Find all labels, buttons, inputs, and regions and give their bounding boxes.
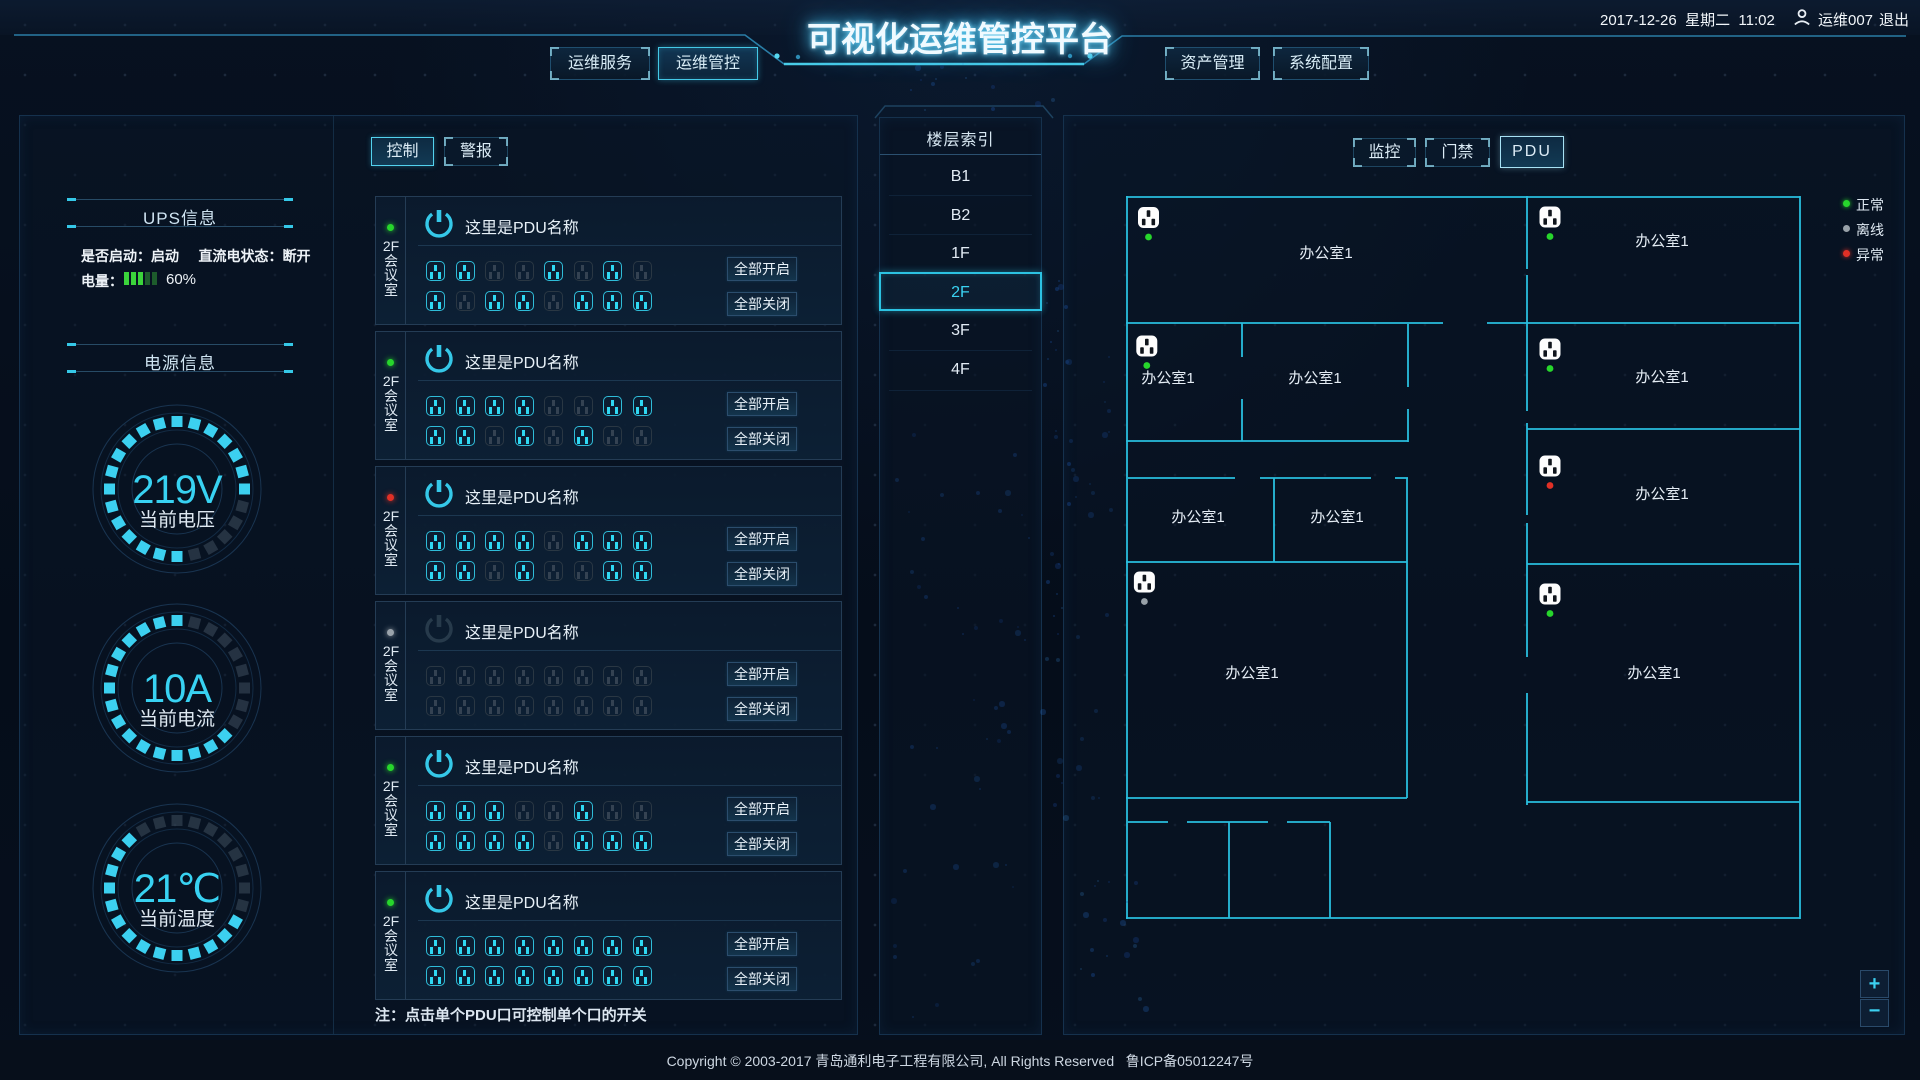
- svg-text:办公室1: 办公室1: [1299, 245, 1352, 262]
- svg-text:办公室1: 办公室1: [1635, 369, 1688, 386]
- svg-text:办公室1: 办公室1: [1635, 486, 1688, 503]
- svg-text:219V: 219V: [132, 468, 223, 512]
- svg-text:当前电压: 当前电压: [139, 509, 215, 531]
- svg-text:办公室1: 办公室1: [1225, 665, 1278, 682]
- svg-text:10A: 10A: [143, 667, 212, 711]
- svg-text:当前温度: 当前温度: [139, 908, 215, 930]
- svg-text:办公室1: 办公室1: [1141, 370, 1194, 387]
- svg-text:当前电流: 当前电流: [139, 708, 215, 730]
- svg-text:办公室1: 办公室1: [1627, 665, 1680, 682]
- svg-text:办公室1: 办公室1: [1310, 509, 1363, 526]
- svg-text:21℃: 21℃: [134, 867, 220, 911]
- svg-text:办公室1: 办公室1: [1171, 509, 1224, 526]
- svg-text:办公室1: 办公室1: [1635, 233, 1688, 250]
- svg-text:办公室1: 办公室1: [1288, 370, 1341, 387]
